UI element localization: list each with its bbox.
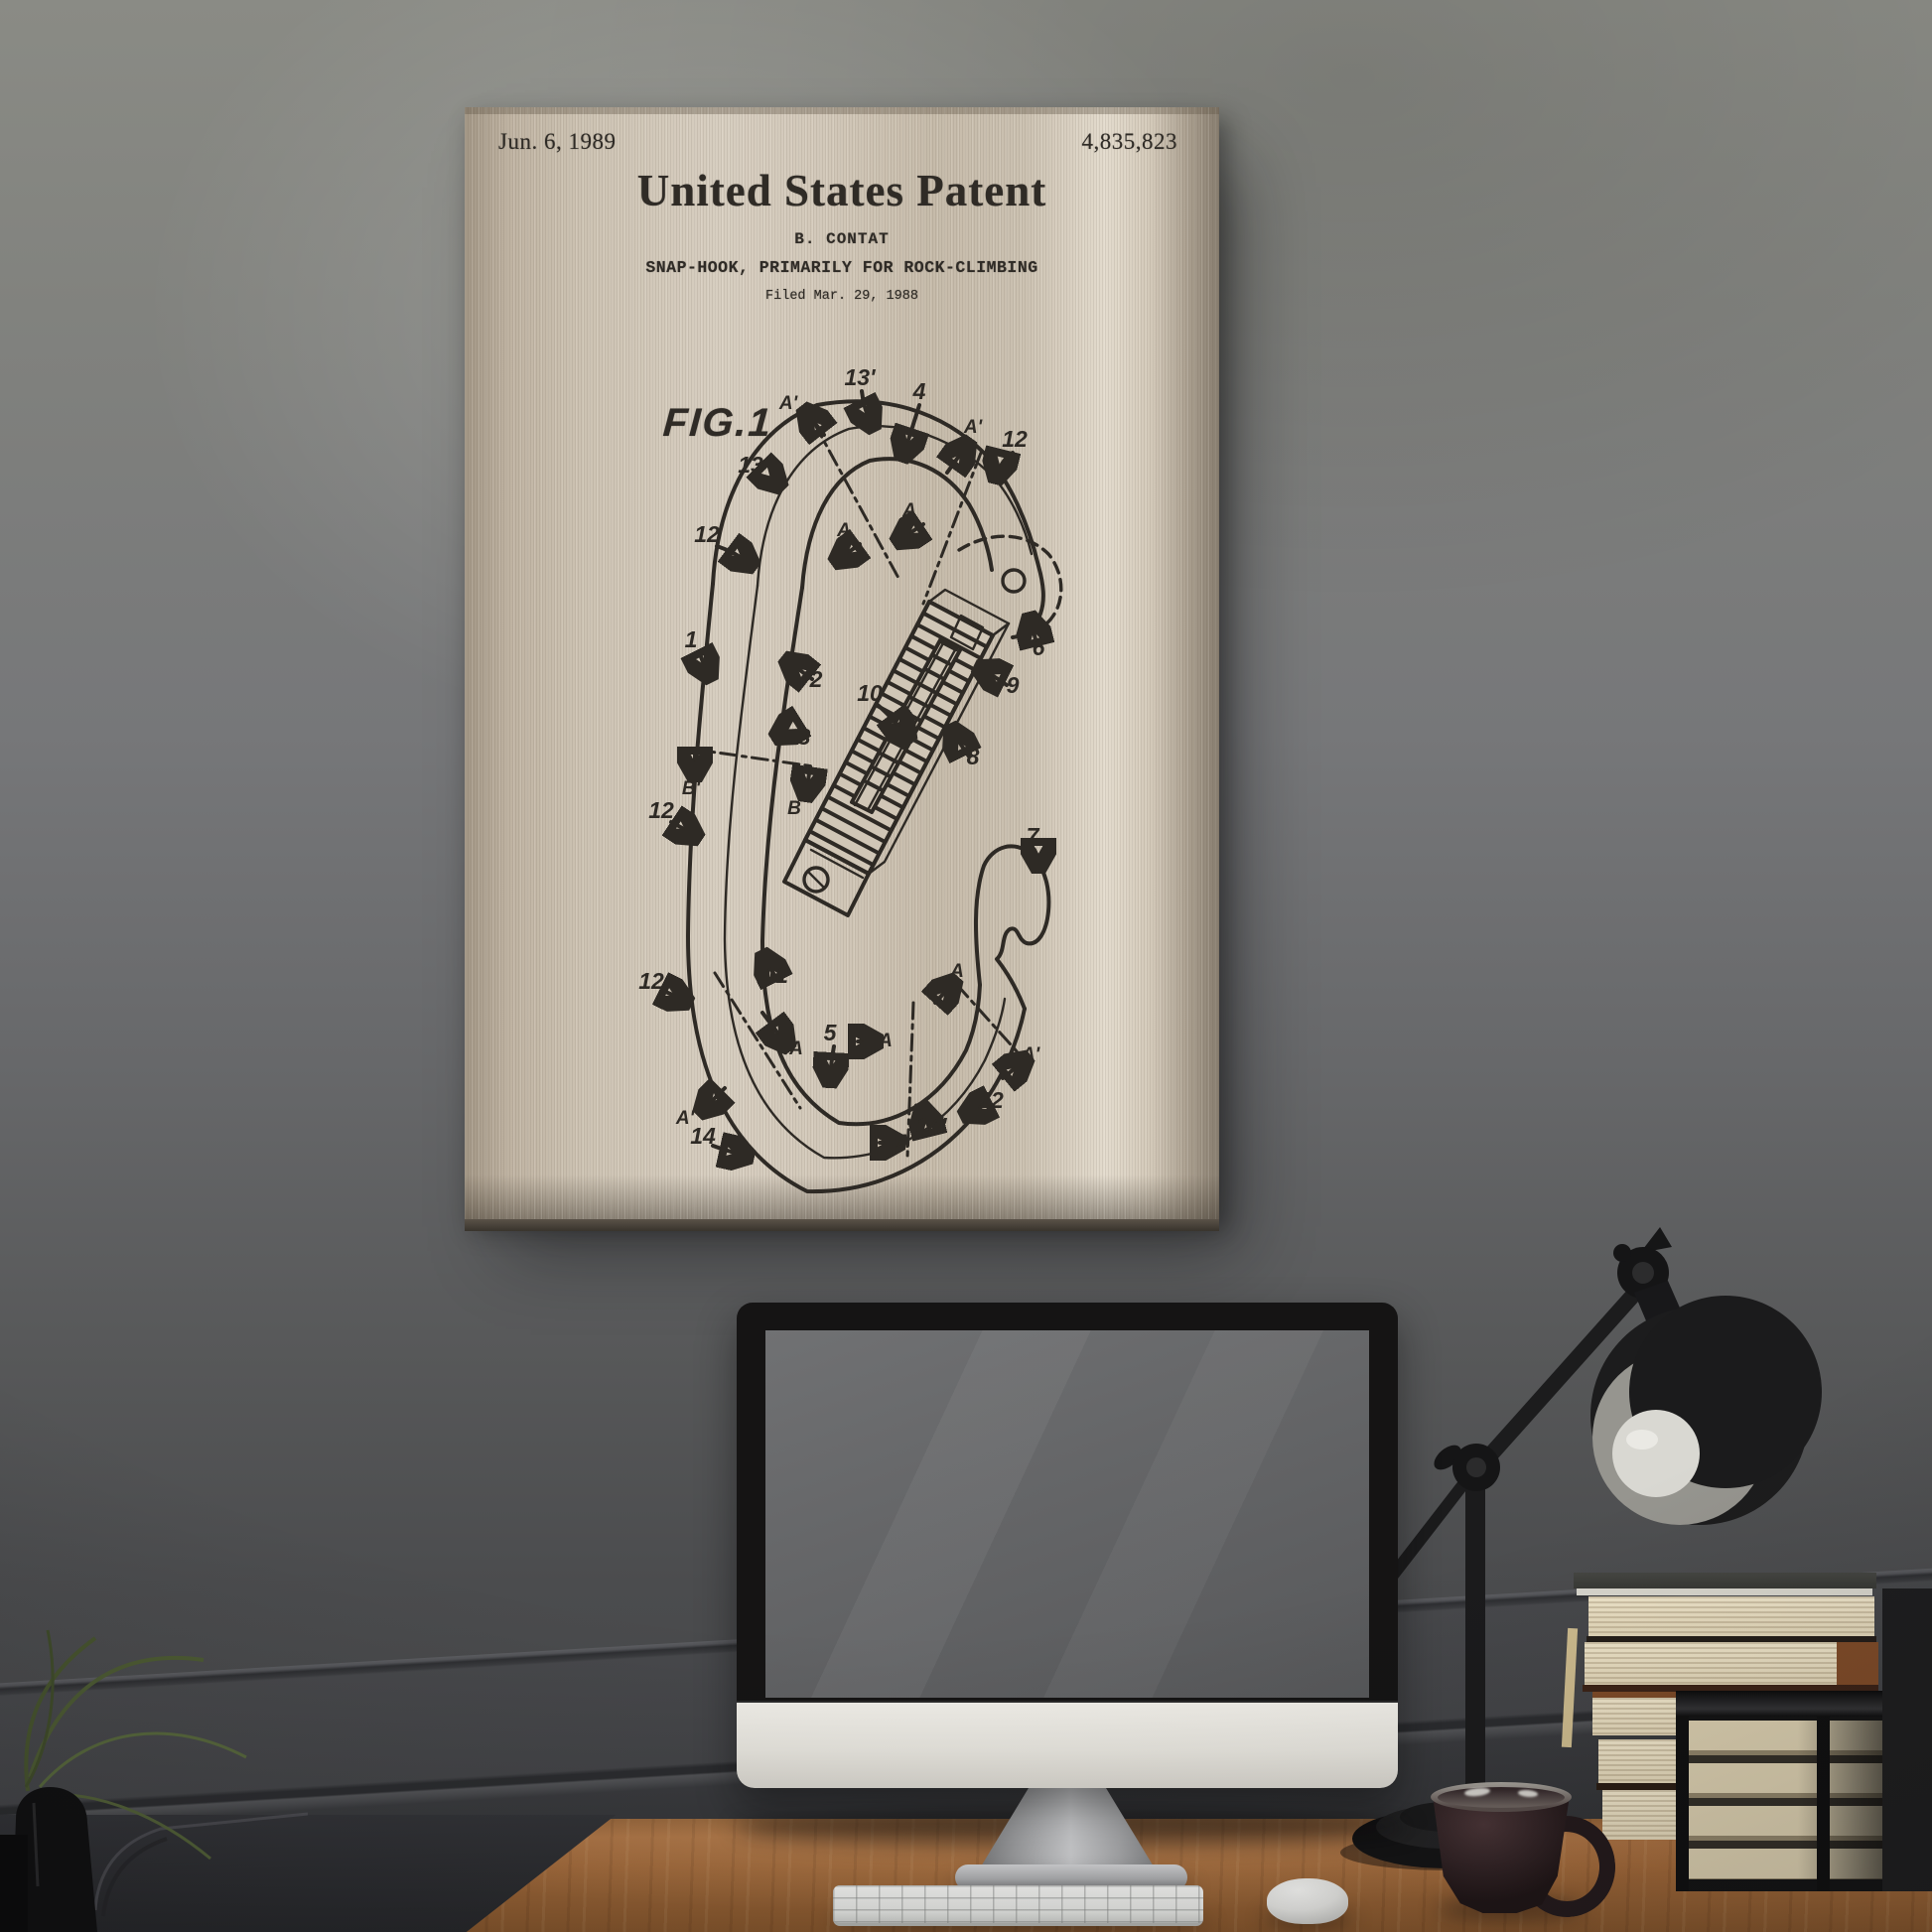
svg-text:12: 12 xyxy=(638,968,664,994)
svg-text:A: A xyxy=(788,1038,803,1059)
monitor-screen xyxy=(765,1330,1369,1698)
carabiner-patent-drawing: 13'4A'A'1213AA1216210938B'B1271211A5AAA'… xyxy=(465,107,1219,1219)
booklet-pages xyxy=(1577,1588,1872,1595)
svg-text:B: B xyxy=(787,798,801,819)
svg-text:B': B' xyxy=(682,778,702,799)
svg-text:A: A xyxy=(901,500,916,521)
svg-text:11: 11 xyxy=(764,962,788,988)
svg-text:13': 13' xyxy=(844,364,877,390)
keyboard xyxy=(833,1885,1203,1926)
svg-text:1: 1 xyxy=(685,626,698,652)
svg-text:9: 9 xyxy=(1007,672,1020,698)
svg-text:A': A' xyxy=(896,1132,916,1153)
svg-text:A: A xyxy=(878,1031,893,1051)
svg-text:5: 5 xyxy=(824,1020,838,1045)
monitor-chin xyxy=(737,1701,1398,1788)
svg-text:12: 12 xyxy=(1002,426,1028,452)
svg-text:12: 12 xyxy=(978,1087,1004,1113)
glass-box-mullion xyxy=(1817,1717,1830,1891)
svg-text:8: 8 xyxy=(967,744,980,769)
mouse xyxy=(1267,1878,1348,1924)
glass-box-frame xyxy=(1676,1717,1689,1891)
coffee-mug xyxy=(1431,1782,1619,1917)
svg-text:2: 2 xyxy=(809,666,823,692)
svg-text:10: 10 xyxy=(857,680,883,706)
svg-text:A': A' xyxy=(1021,1044,1041,1065)
svg-text:A': A' xyxy=(778,393,799,414)
svg-text:7: 7 xyxy=(1027,823,1040,849)
gate-swing-dashed-arc xyxy=(959,536,1061,631)
book-fore-edge xyxy=(1837,1642,1878,1685)
office-room-photo: Jun. 6, 1989 4,835,823 United States Pat… xyxy=(0,0,1932,1932)
svg-text:14': 14' xyxy=(915,1113,948,1139)
svg-text:12: 12 xyxy=(648,797,674,823)
svg-text:13: 13 xyxy=(738,452,763,478)
svg-text:6: 6 xyxy=(1033,634,1045,660)
svg-text:A: A xyxy=(836,520,851,541)
body-outer-top xyxy=(713,401,1043,637)
book xyxy=(1585,1642,1878,1685)
svg-text:3: 3 xyxy=(798,724,811,750)
mug-interior xyxy=(1438,1787,1565,1808)
svg-text:12: 12 xyxy=(694,521,720,547)
book xyxy=(1588,1596,1874,1636)
shadowed-corner xyxy=(1882,1588,1932,1891)
monitor xyxy=(737,1303,1398,1788)
booklet xyxy=(1574,1573,1876,1588)
patent-print-canvas: Jun. 6, 1989 4,835,823 United States Pat… xyxy=(465,107,1219,1219)
body-inner-top xyxy=(802,459,992,588)
svg-text:4: 4 xyxy=(912,378,926,404)
svg-text:A: A xyxy=(949,961,964,982)
hook-claw xyxy=(976,846,1048,1009)
svg-text:A': A' xyxy=(963,417,984,438)
svg-text:14: 14 xyxy=(690,1123,716,1149)
figure-reference-labels: 13'4A'A'1213AA1216210938B'B1271211A5AAA'… xyxy=(638,364,1044,1153)
